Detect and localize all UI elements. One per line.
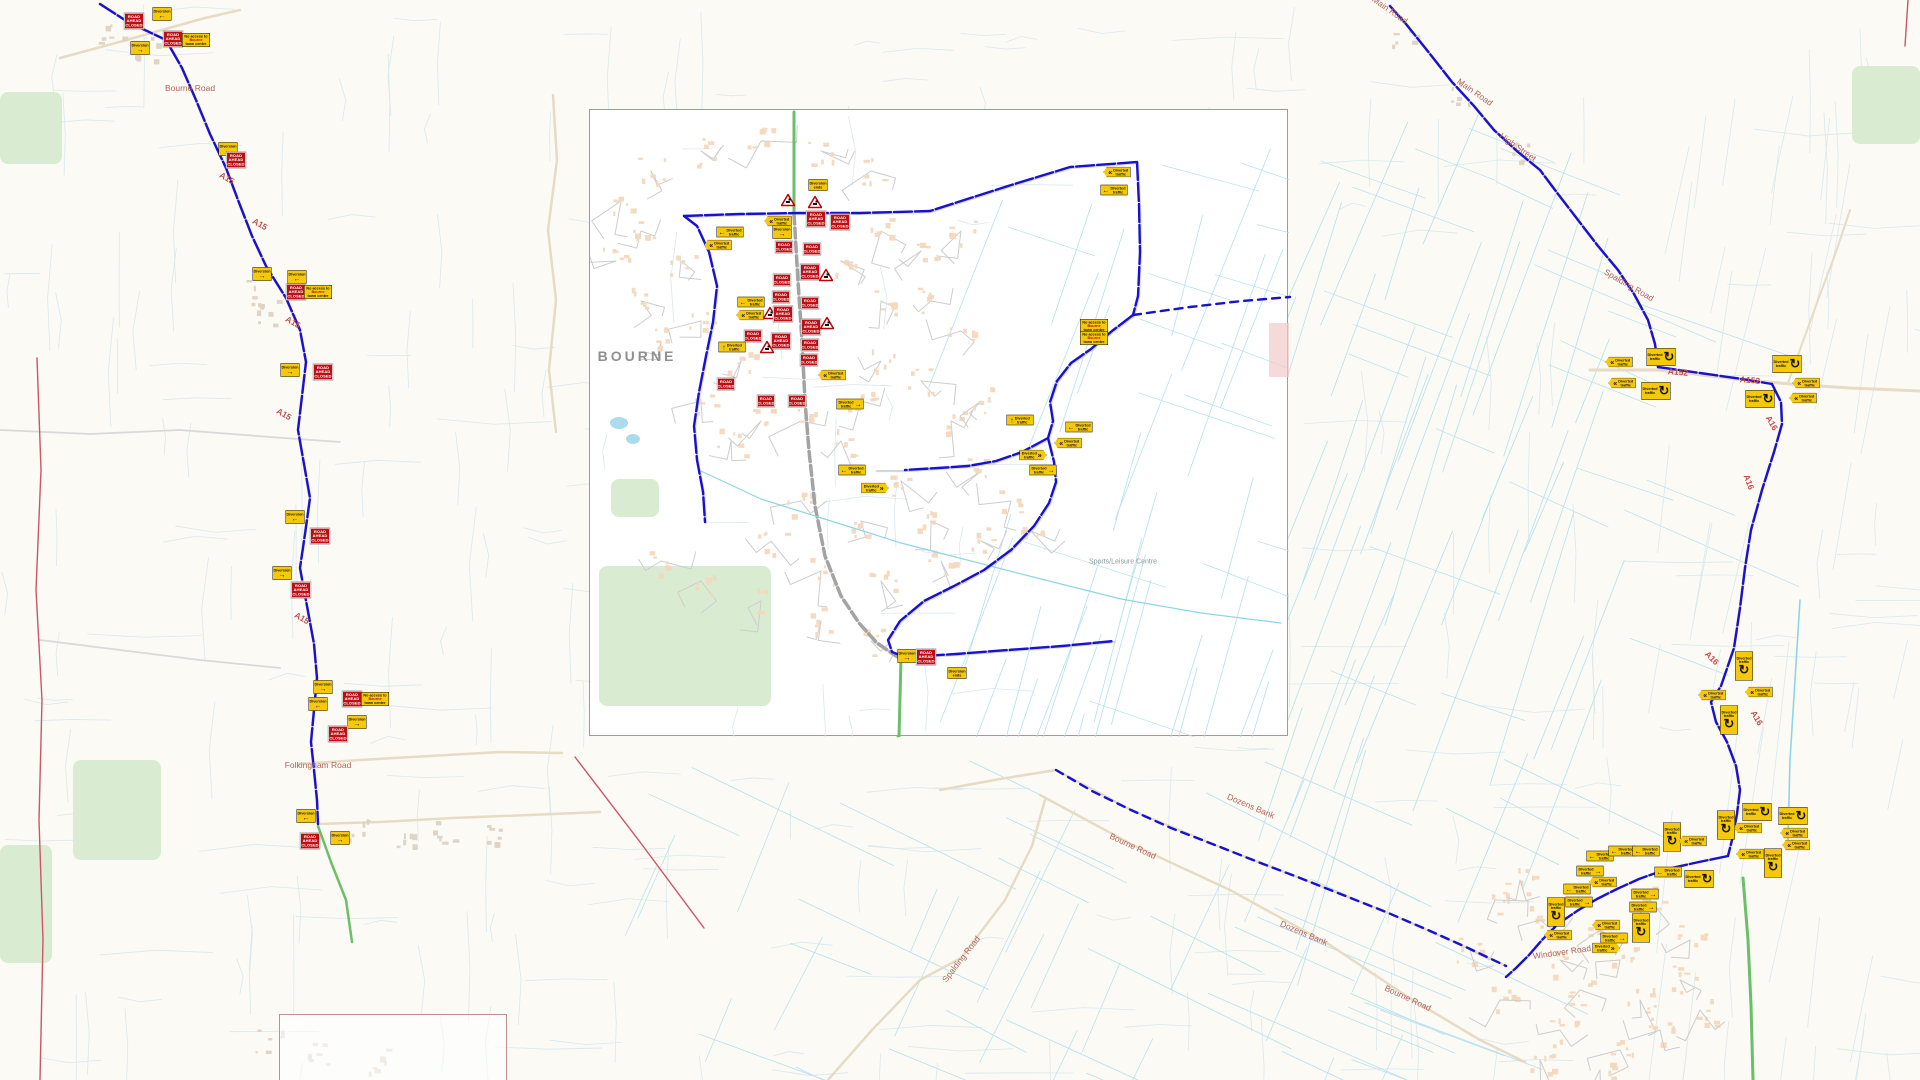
arrow-icon: « (1613, 380, 1617, 386)
sign-roundabout-diversion-vertical: Divertedtraffic↻ (1547, 898, 1565, 927)
diversion-route (1658, 367, 1772, 384)
sign-diverted-traffic-chevron-left: «Divertedtraffic (1735, 823, 1762, 834)
sign-no-access-info: No access toBournetown centre (182, 33, 210, 47)
arrow-icon: → (337, 837, 344, 843)
road-label: A15 (284, 314, 303, 330)
road (1788, 210, 1850, 383)
sign-roundabout-diversion-horizontal: Divertedtraffic↻ (1746, 390, 1775, 408)
roundabout-icon: ↻ (1664, 351, 1675, 363)
arrow-icon: ← (1565, 886, 1572, 892)
diversion-route (1390, 6, 1658, 367)
arrow-icon: ← (294, 276, 301, 282)
road (794, 214, 901, 659)
road-label: Spalding Road (1602, 267, 1655, 304)
sign-roundabout-diversion-horizontal: Divertedtraffic↻ (1773, 355, 1802, 373)
road (40, 640, 280, 668)
sign-diversion-left: Diversion← (288, 270, 307, 284)
road (1049, 316, 1134, 439)
arrow-icon: → (259, 273, 266, 279)
road-label: Spalding Road (940, 934, 982, 984)
road (100, 4, 318, 824)
arrow-icon: « (1549, 932, 1553, 938)
sign-diverted-traffic-right: Divertedtraffic→ (1566, 897, 1593, 908)
sign-diverted-traffic-chevron-left: «Divertedtraffic (1737, 849, 1764, 860)
arrow-icon: « (1594, 879, 1598, 885)
arrow-icon: → (1595, 868, 1602, 874)
arrow-icon: → (287, 369, 294, 375)
sign-diverted-traffic-chevron-left: «Divertedtraffic (1793, 378, 1820, 389)
arrow-icon: ← (1634, 848, 1641, 854)
roundabout-icon: ↻ (1796, 810, 1807, 822)
road-label: Dozens Bank (1279, 919, 1329, 948)
road-label: Folkingham Road (285, 760, 352, 770)
sign-diverted-traffic-left: ←Divertedtraffic (1633, 846, 1660, 857)
road-label: A16 (1703, 649, 1721, 667)
roundabout-icon: ↻ (1760, 806, 1771, 818)
sign-roundabout-diversion-horizontal: Divertedtraffic↻ (1642, 382, 1671, 400)
sign-diversion-right: Diversion→ (281, 363, 300, 377)
sign-road-ahead-closed: ROADAHEADCLOSED (125, 13, 144, 29)
sign-diverted-traffic-left: ←Divertedtraffic (1655, 867, 1682, 878)
waterway (1788, 600, 1800, 840)
sign-roundabout-diversion-vertical: Divertedtraffic↻ (1720, 706, 1738, 735)
sign-diverted-traffic-chevron-left: «Divertedtraffic (1790, 393, 1817, 404)
inset-map-bourne (589, 109, 1288, 736)
sign-road-ahead-closed: ROADAHEADCLOSED (164, 31, 183, 47)
roundabout-icon: ↻ (1763, 393, 1774, 405)
road (828, 800, 1045, 1080)
arrow-icon: « (1794, 395, 1798, 401)
arrow-icon: → (1584, 899, 1591, 905)
boundary-line (575, 757, 704, 928)
sign-diverted-traffic-chevron-left: «Divertedtraffic (1783, 840, 1810, 851)
sign-road-ahead-closed: ROADAHEADCLOSED (227, 152, 246, 168)
sign-diversion-right: Diversion→ (331, 831, 350, 845)
arrow-icon: « (1785, 830, 1789, 836)
road-label: A15 (218, 170, 237, 186)
sign-diversion-right: Diversion→ (273, 566, 292, 580)
road-label: A152 (1667, 366, 1688, 378)
sign-diversion-left: Diversion← (153, 7, 172, 21)
sign-roundabout-diversion-vertical: Divertedtraffic↻ (1632, 914, 1650, 943)
road-label: Bourne Road (1383, 983, 1433, 1013)
sign-diverted-traffic-left: ←Divertedtraffic (1564, 884, 1591, 895)
diversion-route (1506, 856, 1728, 977)
sign-diverted-traffic-right: Divertedtraffic→ (1601, 933, 1628, 944)
sign-diverted-traffic-chevron-left: «Divertedtraffic (1746, 687, 1773, 698)
arrow-icon: « (1597, 922, 1601, 928)
arrow-icon: » (1611, 945, 1615, 951)
arrow-icon: ← (303, 815, 310, 821)
road (1743, 878, 1753, 1080)
sign-road-ahead-closed: ROADAHEADCLOSED (311, 528, 330, 544)
road-label: Windover Road (1532, 943, 1591, 961)
arrow-icon: → (279, 572, 286, 578)
sign-diversion-right: Diversion→ (253, 267, 272, 281)
sign-road-ahead-closed: ROADAHEADCLOSED (287, 284, 306, 300)
sign-roundabout-diversion-horizontal: Divertedtraffic↻ (1647, 348, 1676, 366)
arrow-icon: → (1650, 891, 1657, 897)
sign-road-ahead-closed: ROADAHEADCLOSED (292, 582, 311, 598)
arrow-icon: ← (1656, 869, 1663, 875)
sign-diversion-left: Diversion← (219, 142, 238, 156)
sign-diverted-traffic-right: Divertedtraffic→ (1577, 866, 1604, 877)
road-label: Bourne Road (1108, 831, 1158, 861)
arrow-icon: ← (315, 703, 322, 709)
arrow-icon: ← (292, 516, 299, 522)
sign-diverted-traffic-chevron-left: «Divertedtraffic (1699, 690, 1726, 701)
sign-roundabout-diversion-horizontal: Divertedtraffic↻ (1779, 807, 1808, 825)
road (318, 812, 600, 824)
sign-diverted-traffic-left: ←Divertedtraffic (1609, 846, 1636, 857)
road (1590, 370, 1920, 391)
boundary-line (1905, 0, 1908, 46)
arrow-icon: ← (225, 148, 232, 154)
arrow-icon: ← (159, 13, 166, 19)
sign-roundabout-diversion-vertical: Divertedtraffic↻ (1764, 849, 1782, 878)
road (318, 826, 352, 942)
sign-diverted-traffic-chevron-right: Divertedtraffic» (1593, 943, 1620, 954)
roundabout-icon: ↻ (1768, 861, 1779, 873)
road (1506, 856, 1728, 977)
arrow-icon: « (1610, 359, 1614, 365)
road-label: A16 (1749, 709, 1765, 728)
arrow-icon: → (1619, 935, 1626, 941)
sign-diversion-right: Diversion→ (314, 680, 333, 694)
road (0, 430, 340, 442)
sign-road-ahead-closed: ROADAHEADCLOSED (329, 726, 348, 742)
roundabout-icon: ↻ (1739, 664, 1750, 676)
road (1040, 795, 1525, 1062)
sign-road-ahead-closed: ROADAHEADCLOSED (314, 364, 333, 380)
sign-diversion-left: Diversion← (286, 510, 305, 524)
road (298, 752, 562, 764)
arrow-icon: ← (1588, 853, 1595, 859)
roundabout-icon: ↻ (1790, 358, 1801, 370)
road-label: A15 (251, 216, 270, 232)
arrow-icon: « (1684, 838, 1688, 844)
legend-box (279, 1014, 507, 1080)
roundabout-icon: ↻ (1702, 873, 1713, 885)
arrow-icon: → (354, 721, 361, 727)
sign-no-access-info: No access toBournetown centre (361, 692, 389, 706)
arrow-icon: → (137, 47, 144, 53)
road-label: Main Road (1455, 76, 1494, 108)
sign-diversion-right: Diversion→ (348, 715, 367, 729)
road (548, 95, 557, 432)
road (1390, 6, 1658, 367)
sign-roundabout-diversion-horizontal: Divertedtraffic↻ (1685, 870, 1714, 888)
arrow-icon: → (1648, 904, 1655, 910)
sign-diverted-traffic-chevron-left: «Divertedtraffic (1680, 836, 1707, 847)
arrow-icon: « (1787, 842, 1791, 848)
sign-diverted-traffic-left: ←Divertedtraffic (1587, 851, 1614, 862)
sign-diversion-right: Diversion→ (131, 41, 150, 55)
sign-diverted-traffic-right: Divertedtraffic→ (1630, 902, 1657, 913)
diversion-route (1711, 384, 1782, 856)
arrow-icon: « (1741, 851, 1745, 857)
road-label: A15 (293, 610, 312, 626)
boundary-line (36, 358, 43, 1080)
road-label: A15 (275, 406, 294, 422)
road-label: Main Road (1370, 0, 1409, 26)
road (877, 439, 1049, 471)
inset-map-layer (590, 110, 1289, 737)
roundabout-icon: ↻ (1551, 910, 1562, 922)
sign-diverted-traffic-chevron-left: «Divertedtraffic (1545, 930, 1572, 941)
road-label: A152 (1739, 374, 1760, 386)
sign-roundabout-diversion-horizontal: Divertedtraffic↻ (1743, 803, 1772, 821)
roundabout-icon: ↻ (1667, 835, 1678, 847)
arrow-icon: « (1739, 825, 1743, 831)
arrow-icon: « (1703, 692, 1707, 698)
sign-road-ahead-closed: ROADAHEADCLOSED (301, 833, 320, 849)
sign-diverted-traffic-right: Divertedtraffic→ (1632, 889, 1659, 900)
road (1711, 384, 1782, 856)
roundabout-icon: ↻ (1659, 385, 1670, 397)
road (60, 10, 240, 58)
sign-diverted-traffic-chevron-left: «Divertedtraffic (1781, 828, 1808, 839)
road-label: Dozens Bank (1226, 792, 1276, 821)
road-label: High Street (1498, 131, 1539, 164)
roundabout-icon: ↻ (1724, 718, 1735, 730)
sign-diverted-traffic-chevron-left: «Divertedtraffic (1609, 378, 1636, 389)
sign-diversion-left: Diversion← (297, 809, 316, 823)
sign-roundabout-diversion-vertical: Divertedtraffic↻ (1717, 811, 1735, 840)
roundabout-icon: ↻ (1721, 823, 1732, 835)
arrow-icon: ← (1610, 848, 1617, 854)
sign-diverted-traffic-chevron-left: «Divertedtraffic (1590, 877, 1617, 888)
road-label: A16 (1742, 473, 1757, 491)
diversion-route (1056, 770, 1506, 966)
traffic-diversion-map: Diversion←ROADAHEADCLOSEDROADAHEADCLOSED… (0, 0, 1920, 1080)
sign-diverted-traffic-chevron-left: «Divertedtraffic (1606, 357, 1633, 368)
road (940, 770, 1506, 966)
sign-diversion-left: Diversion← (309, 697, 328, 711)
sign-roundabout-diversion-vertical: Divertedtraffic↻ (1663, 823, 1681, 852)
road (899, 658, 901, 737)
arrow-icon: « (1750, 689, 1754, 695)
road (685, 163, 1141, 316)
arrow-icon: « (1797, 380, 1801, 386)
diversion-route (100, 4, 318, 824)
sign-road-ahead-closed: ROADAHEADCLOSED (343, 691, 362, 707)
sign-roundabout-diversion-vertical: Divertedtraffic↻ (1735, 652, 1753, 681)
sign-diverted-traffic-chevron-left: «Divertedtraffic (1593, 920, 1620, 931)
road-label: Bourne Road (165, 83, 215, 93)
sign-no-access-info: No access toBournetown centre (304, 285, 332, 299)
arrow-icon: → (320, 686, 327, 692)
roundabout-icon: ↻ (1636, 926, 1647, 938)
road-label: A16 (1764, 414, 1780, 433)
